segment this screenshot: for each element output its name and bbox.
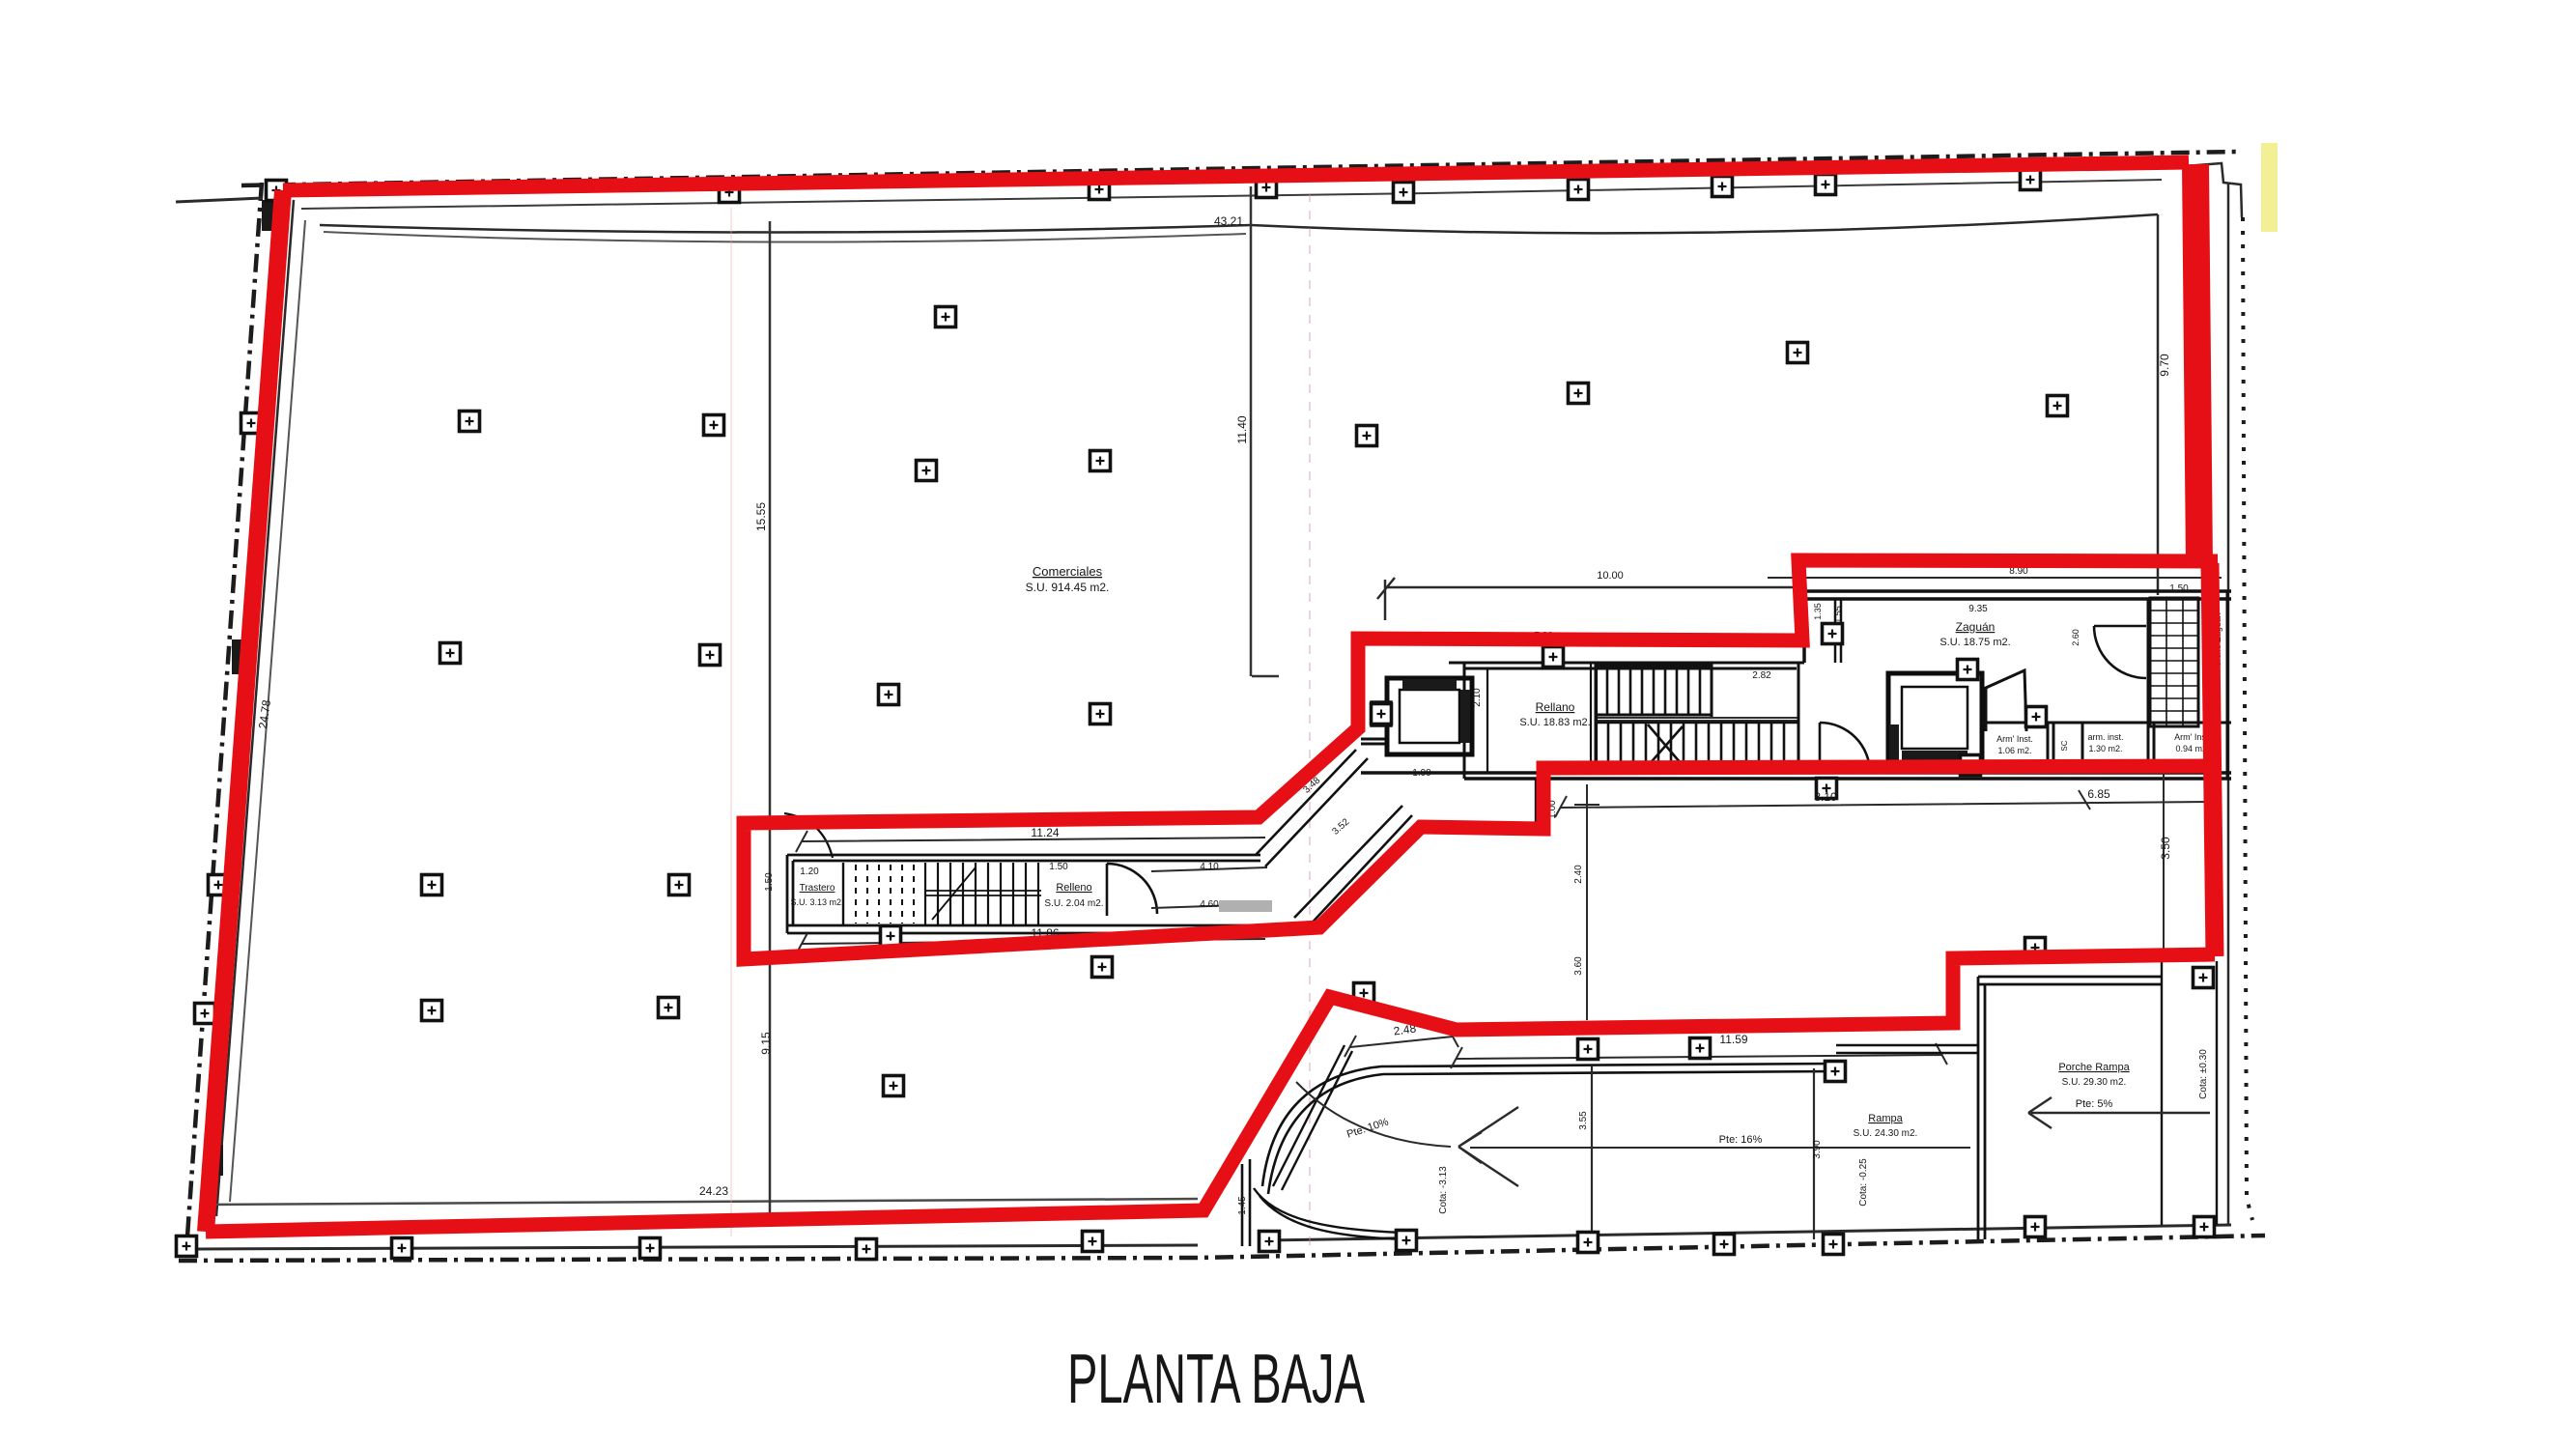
svg-text:Relleno: Relleno (1056, 882, 1091, 894)
svg-text:2.82: 2.82 (1752, 670, 1771, 681)
svg-text:arm. inst.: arm. inst. (2087, 732, 2123, 742)
svg-text:1.30 m2.: 1.30 m2. (2088, 744, 2122, 753)
svg-text:24.23: 24.23 (699, 1184, 728, 1198)
svg-text:Cota: -3.13: Cota: -3.13 (1438, 1166, 1449, 1214)
svg-text:2.10: 2.10 (1472, 688, 1483, 707)
svg-text:2.60: 2.60 (2071, 629, 2081, 646)
svg-text:S.U. 18.83 m2.: S.U. 18.83 m2. (1519, 717, 1590, 728)
svg-text:1.20: 1.20 (800, 867, 819, 877)
svg-text:Cota: -0.25: Cota: -0.25 (1858, 1158, 1869, 1207)
svg-text:Rellano: Rellano (1536, 700, 1575, 714)
svg-text:Porche Rampa: Porche Rampa (2058, 1062, 2130, 1073)
svg-text:10.00: 10.00 (1597, 570, 1624, 582)
svg-text:11.24: 11.24 (1031, 826, 1059, 839)
svg-text:S.U. 29.30 m2.: S.U. 29.30 m2. (2062, 1077, 2127, 1088)
svg-text:1.50: 1.50 (1049, 862, 1068, 872)
svg-text:11.40: 11.40 (1235, 415, 1249, 443)
svg-text:Comerciales: Comerciales (1033, 564, 1103, 579)
svg-text:8.10: 8.10 (1814, 790, 1837, 804)
svg-text:Pte: 5%: Pte: 5% (2076, 1098, 2113, 1110)
svg-text:S.U. 18.75 m2.: S.U. 18.75 m2. (1939, 637, 2010, 648)
svg-text:9.35: 9.35 (1968, 604, 1988, 614)
svg-text:3.60: 3.60 (1573, 956, 1584, 976)
svg-text:Trastero: Trastero (800, 883, 835, 894)
svg-text:1.45: 1.45 (1237, 1196, 1248, 1215)
svg-text:3.90: 3.90 (1812, 1140, 1823, 1159)
svg-text:3.50: 3.50 (2159, 837, 2172, 860)
svg-text:Zaguán: Zaguán (1956, 620, 1996, 634)
svg-text:9.15: 9.15 (759, 1032, 773, 1055)
svg-text:1.06 m2.: 1.06 m2. (1997, 746, 2031, 755)
svg-text:PLANTA BAJA: PLANTA BAJA (1067, 1341, 1365, 1418)
svg-text:Cota: ±0.30: Cota: ±0.30 (2198, 1049, 2209, 1099)
svg-text:6.85: 6.85 (2087, 787, 2110, 801)
svg-text:SC: SC (2060, 740, 2069, 751)
svg-text:2.40: 2.40 (1573, 865, 1584, 884)
svg-text:1.55: 1.55 (1833, 606, 1843, 623)
svg-text:9.70: 9.70 (2158, 354, 2171, 377)
svg-text:4.10: 4.10 (1200, 862, 1219, 872)
svg-text:1.35: 1.35 (1813, 603, 1823, 620)
svg-text:S.U. 2.04 m2.: S.U. 2.04 m2. (1044, 898, 1103, 909)
svg-text:1.90: 1.90 (1412, 768, 1431, 779)
svg-text:11.59: 11.59 (1719, 1033, 1747, 1046)
svg-text:Arm' Inst.: Arm' Inst. (1996, 734, 2033, 744)
svg-text:1.50: 1.50 (2169, 583, 2189, 594)
svg-text:43.21: 43.21 (1214, 214, 1243, 228)
svg-text:S.U. 24.30 m2.: S.U. 24.30 m2. (1854, 1128, 1918, 1139)
svg-text:S.U. 914.45 m2.: S.U. 914.45 m2. (1026, 581, 1110, 594)
svg-text:S.U. 3.13 m2.: S.U. 3.13 m2. (790, 897, 843, 907)
svg-text:4.60: 4.60 (1200, 899, 1219, 910)
svg-text:Pte: 16%: Pte: 16% (1719, 1134, 1763, 1146)
svg-text:1.50: 1.50 (764, 872, 775, 892)
svg-text:15.55: 15.55 (754, 502, 768, 531)
svg-text:3.55: 3.55 (1578, 1111, 1589, 1130)
svg-text:Rampa: Rampa (1868, 1113, 1903, 1124)
